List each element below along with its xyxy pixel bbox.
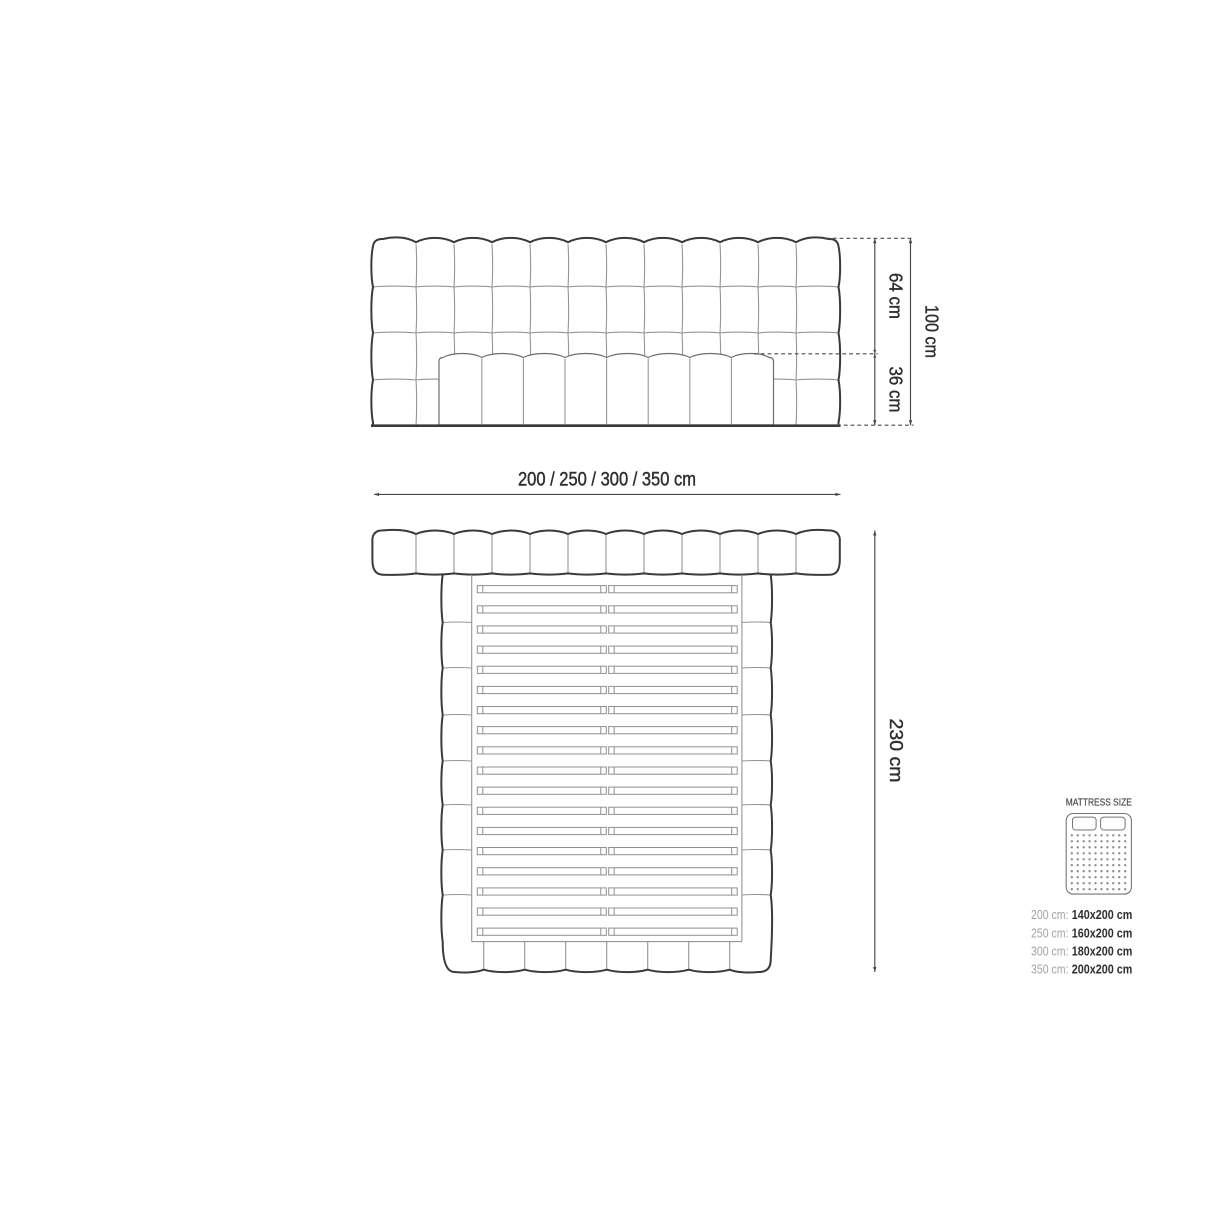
- svg-text:180x200 cm: 180x200 cm: [1072, 943, 1133, 958]
- svg-text:250 cm:: 250 cm:: [1031, 925, 1069, 940]
- svg-text:200x200 cm: 200x200 cm: [1072, 962, 1133, 977]
- svg-text:36 cm: 36 cm: [886, 367, 906, 413]
- svg-text:140x200 cm: 140x200 cm: [1072, 907, 1133, 922]
- svg-text:200 / 250 / 300 / 350 cm: 200 / 250 / 300 / 350 cm: [518, 469, 696, 491]
- svg-text:200 cm:: 200 cm:: [1031, 907, 1069, 922]
- svg-text:100 cm: 100 cm: [922, 305, 942, 358]
- svg-text:350 cm:: 350 cm:: [1031, 962, 1069, 977]
- svg-text:300 cm:: 300 cm:: [1031, 943, 1069, 958]
- svg-text:160x200 cm: 160x200 cm: [1072, 925, 1133, 940]
- svg-text:64 cm: 64 cm: [886, 273, 906, 319]
- svg-text:MATTRESS SIZE: MATTRESS SIZE: [1066, 797, 1132, 809]
- svg-text:230 cm: 230 cm: [886, 719, 906, 783]
